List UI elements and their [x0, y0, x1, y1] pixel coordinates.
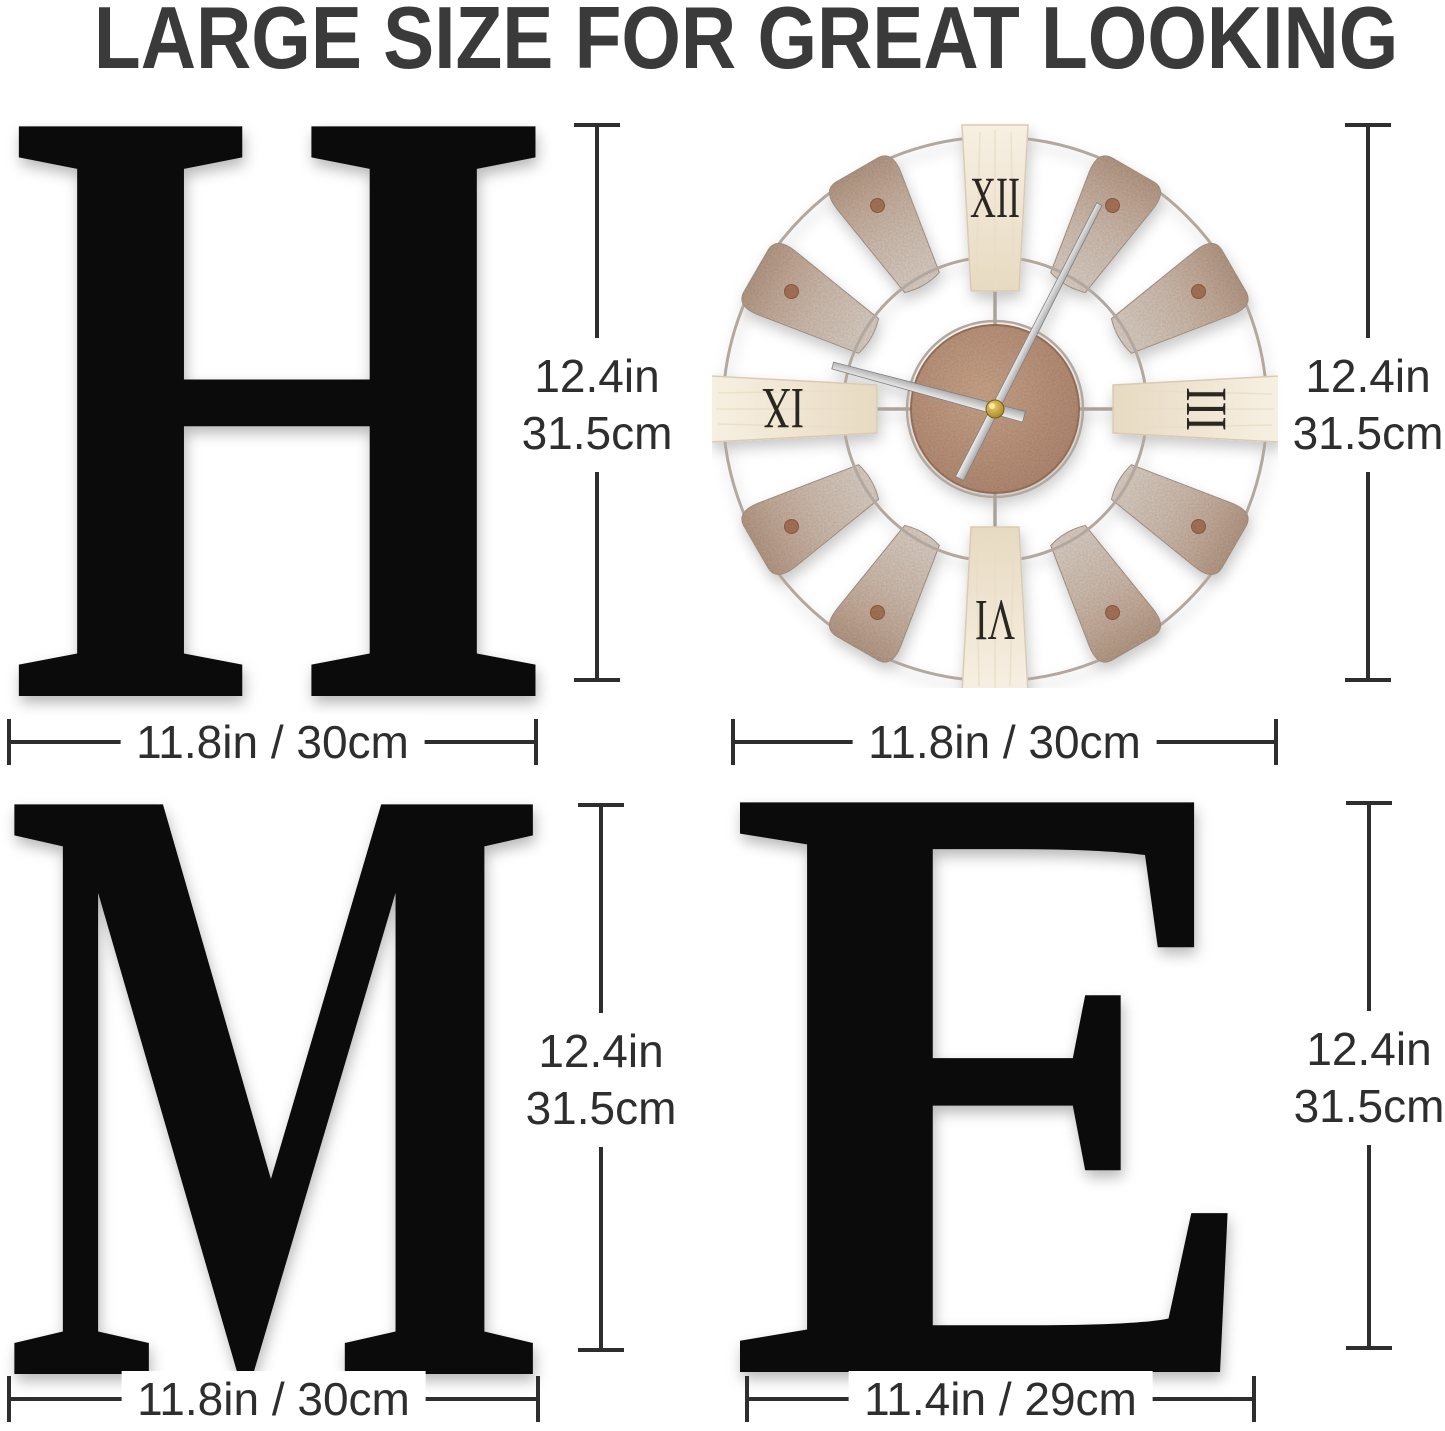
clock-plank-3: III [1113, 376, 1278, 442]
clock-plank-12: XII [962, 125, 1028, 291]
dimension-cap [578, 803, 624, 807]
letter-e-glyph: E [740, 798, 1255, 1376]
clock-plank-9: IX [712, 376, 877, 442]
windmill-clock: XII III VI IX [712, 122, 1278, 688]
dimension-cap [745, 1376, 749, 1422]
clock-height-inches: 12.4in [1293, 348, 1444, 405]
dimension-cap [731, 719, 735, 765]
clock-plank-6: VI [962, 527, 1028, 688]
dimension-cap [534, 719, 538, 765]
letter-m-glyph: M [5, 800, 550, 1378]
e-width-label: 11.4in / 29cm [848, 1371, 1153, 1427]
dimension-cap [536, 1376, 540, 1422]
clock-numeral-12: XII [970, 165, 1020, 230]
m-height-cm: 31.5cm [526, 1080, 677, 1137]
clock-width-label: 11.8in / 30cm [852, 714, 1157, 770]
dimension-cap [578, 1348, 624, 1352]
h-width-label: 11.8in / 30cm [120, 714, 425, 770]
letter-m: M [5, 800, 550, 1378]
dimension-cap [1346, 801, 1392, 805]
e-height-cm: 31.5cm [1294, 1078, 1445, 1135]
clock-pin-highlight [989, 403, 995, 409]
clock-height-cm: 31.5cm [1293, 405, 1444, 462]
m-height-inches: 12.4in [526, 1023, 677, 1080]
dimension-cap [7, 1376, 11, 1422]
dimension-cap [1252, 1376, 1256, 1422]
clock-center-pin [986, 400, 1004, 418]
dimension-cap [574, 678, 620, 682]
letter-h-glyph: H [7, 120, 547, 700]
h-height-cm: 31.5cm [522, 405, 673, 462]
m-height-label: 12.4in 31.5cm [522, 1013, 681, 1147]
dimension-cap [1274, 719, 1278, 765]
clock-height-label: 12.4in 31.5cm [1289, 338, 1445, 472]
clock-numeral-9: IX [762, 376, 804, 441]
m-width-label: 11.8in / 30cm [121, 1371, 426, 1427]
dimension-cap [7, 719, 11, 765]
letter-h: H [5, 120, 550, 700]
product-infographic: LARGE SIZE FOR GREAT LOOKING H M E [0, 0, 1445, 1431]
dimension-cap [574, 123, 620, 127]
h-height-label: 12.4in 31.5cm [518, 338, 677, 472]
clock-numeral-3: III [1174, 387, 1239, 431]
h-height-inches: 12.4in [522, 348, 673, 405]
dimension-cap [1346, 1346, 1392, 1350]
e-height-label: 12.4in 31.5cm [1290, 1011, 1445, 1145]
letter-e: E [740, 798, 1255, 1376]
dimension-cap [1345, 123, 1391, 127]
page-title: LARGE SIZE FOR GREAT LOOKING [94, 0, 1351, 84]
e-height-inches: 12.4in [1294, 1021, 1445, 1078]
clock-numeral-6: VI [975, 588, 1015, 653]
dimension-cap [1345, 678, 1391, 682]
